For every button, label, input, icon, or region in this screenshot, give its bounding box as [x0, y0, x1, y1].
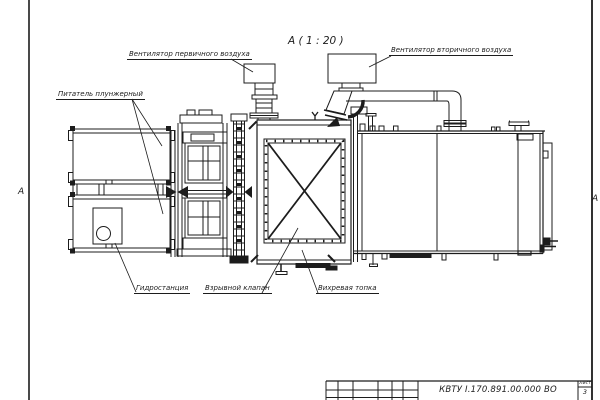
title-block-document-number: КВТУ I.170.891.00.000 ВО [418, 381, 578, 399]
view-title: А ( 1 : 20 ) [288, 35, 344, 47]
feeder-assembly [69, 127, 175, 254]
section-marker-left: А [18, 187, 24, 197]
label-feeder: Питатель плунжерный [56, 90, 145, 100]
vortex-furnace-body [249, 112, 351, 275]
drawing-sheet: А ( 1 : 20 ) Вентилятор первичного возду… [0, 0, 600, 400]
hydraulic-station-unit [93, 208, 122, 244]
label-secondary-fan: Вентилятор вторичного воздуха [389, 46, 513, 56]
tank-body [353, 121, 558, 267]
section-marker-right: А [592, 194, 598, 204]
title-block-sheet-label: Лист [578, 381, 592, 387]
tank-top-nozzle [509, 121, 529, 132]
label-hydraulic-station: Гидростанция [134, 284, 190, 294]
feeder-frame-section [166, 110, 231, 257]
explosion-valve-panel [264, 139, 345, 243]
label-explosion-valve: Взрывной клапан [203, 284, 272, 294]
drawing-linework [0, 0, 600, 400]
label-primary-fan: Вентилятор первичного воздуха [127, 50, 252, 60]
chain-column [226, 114, 252, 263]
primary-fan-unit [244, 64, 278, 120]
label-vortex-furnace: Вихревая топка [316, 284, 379, 294]
title-block-sheet-number: 3 [578, 388, 592, 396]
